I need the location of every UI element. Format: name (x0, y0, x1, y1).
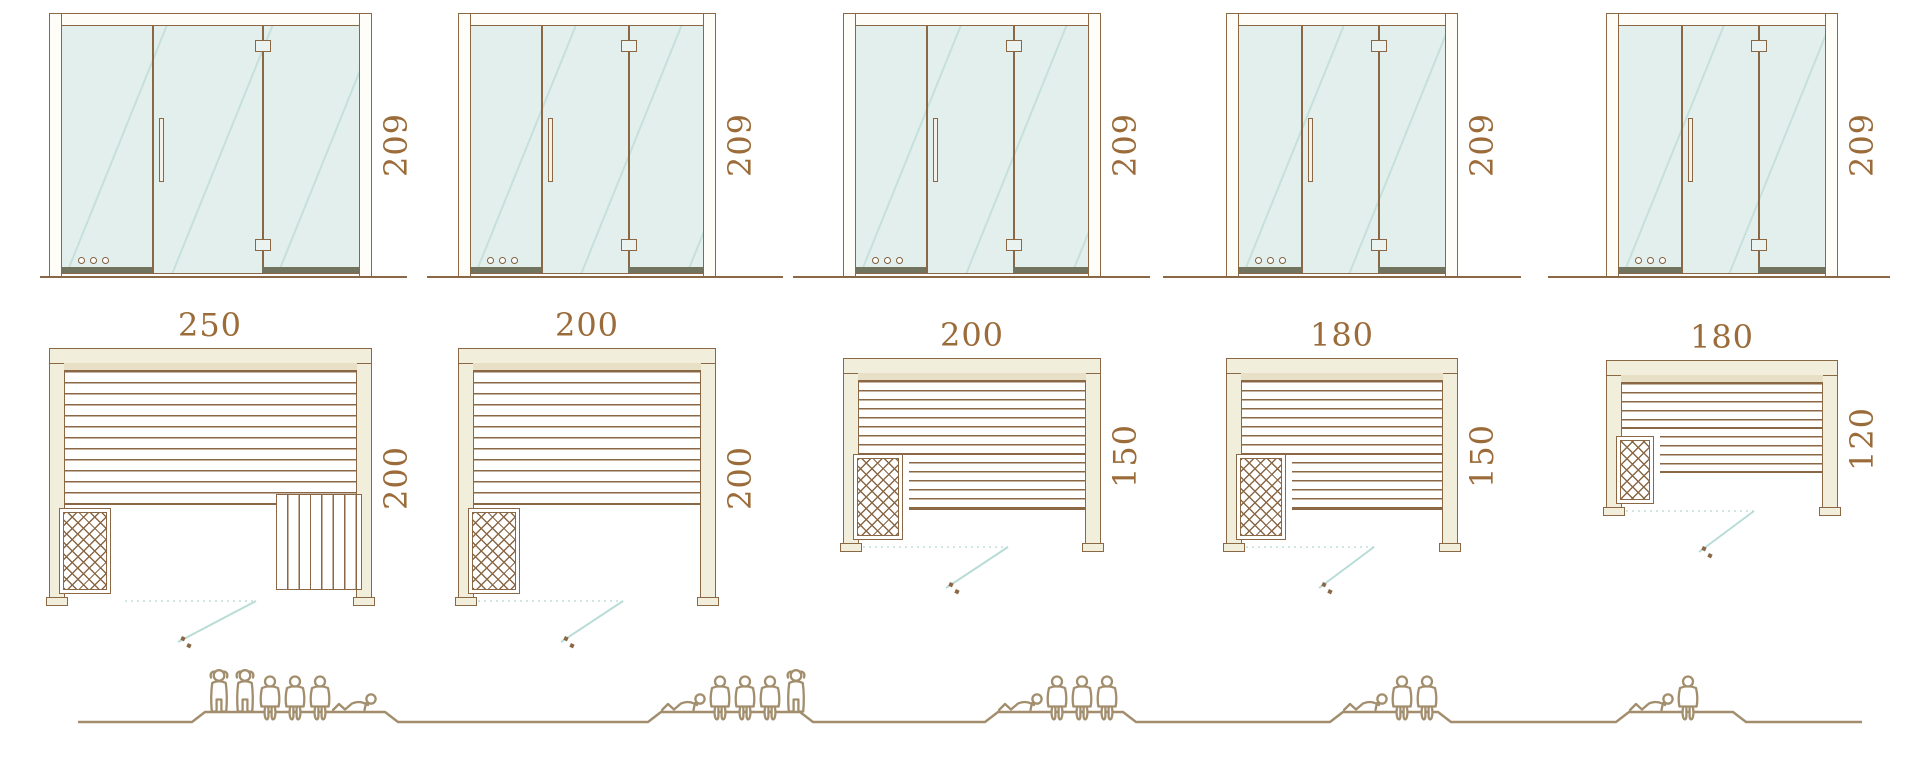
vent-hole (872, 257, 879, 264)
heater-lattice-icon (1616, 436, 1654, 504)
person-reclining-icon (1630, 694, 1673, 710)
plan-wall-ledge (1241, 373, 1443, 381)
swing-key-marker (1327, 589, 1332, 594)
plan-wall-ledge (1621, 375, 1823, 383)
door-hinge-mullion (262, 26, 264, 273)
person-seated-icon (1418, 677, 1437, 720)
vent-hole (102, 257, 109, 264)
person-seated-icon (286, 677, 305, 720)
bench-slats-upper (64, 371, 357, 505)
door-hinge-bottom-icon (621, 239, 637, 251)
lattice-mesh (472, 512, 516, 590)
door-left-mullion (926, 26, 928, 273)
lattice-mesh (1620, 440, 1650, 500)
vent-hole (1267, 257, 1274, 264)
person-seated-icon (736, 677, 755, 720)
person-seated-icon (1073, 677, 1092, 720)
capacity-group-5-people (662, 670, 804, 719)
bench-slats-lower (1660, 436, 1823, 473)
capacity-group-6-people (211, 670, 376, 719)
door-frame-right-post (1445, 13, 1458, 277)
door-ground-line (1163, 276, 1521, 278)
heater-lattice-icon (1236, 454, 1286, 540)
person-reclining-icon (333, 694, 376, 710)
lattice-mesh (857, 458, 899, 536)
glass-panels (470, 25, 704, 274)
glass-panels (61, 25, 360, 274)
person-seated-icon (761, 677, 780, 720)
person-seated-icon (1393, 677, 1412, 720)
person-seated-icon (311, 677, 330, 720)
plan-depth-dimension: 120 (1843, 407, 1881, 471)
person-reclining-icon (999, 694, 1042, 710)
door-hinge-top-icon (1371, 40, 1387, 52)
door-hinge-bottom-icon (1006, 239, 1022, 251)
door-elevation (1226, 13, 1458, 277)
door-hinge-top-icon (1006, 40, 1022, 52)
door-left-mullion (541, 26, 543, 273)
vent-hole (499, 257, 506, 264)
vent-holes-icon (1255, 257, 1286, 264)
door-hinge-mullion (1758, 26, 1760, 273)
vent-hole (487, 257, 494, 264)
floor-plan (49, 348, 372, 604)
door-swing-line (49, 598, 372, 662)
right-panel-bottom-rail (1758, 267, 1825, 273)
door-swing-line (1226, 544, 1458, 608)
person-reclining-icon (1344, 694, 1387, 710)
vent-hole (78, 257, 85, 264)
right-panel-bottom-rail (1378, 267, 1445, 273)
left-panel-bottom-rail (1239, 267, 1301, 273)
plan-top-wall (49, 348, 372, 364)
plan-right-wall (1085, 358, 1101, 550)
vent-hole (896, 257, 903, 264)
vent-holes-icon (1635, 257, 1666, 264)
plan-width-dimension: 250 (178, 306, 242, 344)
door-elevation (49, 13, 372, 277)
door-swing-line (1606, 508, 1838, 572)
bench-slats-upper (1241, 381, 1443, 455)
person-seated-icon (1048, 677, 1067, 720)
person-reclining-icon (662, 694, 705, 710)
glass-panels (1238, 25, 1446, 274)
vent-hole (1279, 257, 1286, 264)
door-elevation (843, 13, 1101, 277)
door-height-dimension: 209 (1463, 113, 1501, 177)
plan-top-wall (1606, 360, 1838, 376)
vent-holes-icon (78, 257, 109, 264)
plan-right-wall (700, 348, 716, 604)
floor-plan (843, 358, 1101, 550)
left-panel-bottom-rail (856, 267, 926, 273)
floor-plan (458, 348, 716, 604)
door-left-mullion (1301, 26, 1303, 273)
door-frame-right-post (359, 13, 372, 277)
lattice-mesh (63, 512, 107, 590)
door-frame-right-post (1088, 13, 1101, 277)
door-ground-line (40, 276, 407, 278)
door-left-mullion (152, 26, 154, 273)
door-hinge-top-icon (255, 40, 271, 52)
door-height-dimension: 209 (1843, 113, 1881, 177)
door-hinge-mullion (1378, 26, 1380, 273)
vent-hole (884, 257, 891, 264)
door-handle-icon (548, 118, 553, 182)
bench-slats-lower (909, 462, 1086, 510)
door-hinge-mullion (1013, 26, 1015, 273)
plan-width-dimension: 200 (940, 316, 1004, 354)
plan-top-wall (458, 348, 716, 364)
door-hinge-top-icon (1751, 40, 1767, 52)
plan-wall-ledge (64, 363, 357, 371)
door-elevation (458, 13, 716, 277)
vent-holes-icon (487, 257, 518, 264)
door-hinge-bottom-icon (1751, 239, 1767, 251)
door-ground-line (427, 276, 783, 278)
plan-right-wall (1822, 360, 1838, 514)
plan-width-dimension: 200 (555, 306, 619, 344)
plan-depth-dimension: 200 (377, 446, 415, 510)
vent-hole (511, 257, 518, 264)
left-panel-bottom-rail (62, 267, 152, 273)
vent-holes-icon (872, 257, 903, 264)
plan-depth-dimension: 200 (721, 446, 759, 510)
person-seated-icon (1098, 677, 1117, 720)
plan-right-wall (1442, 358, 1458, 550)
door-hinge-top-icon (621, 40, 637, 52)
glass-panels (855, 25, 1089, 274)
heater-lattice-icon (853, 454, 903, 540)
person-standing-icon (211, 670, 228, 711)
swing-key-marker (954, 589, 959, 594)
door-swing-line (458, 598, 716, 662)
floor-plan (1226, 358, 1458, 550)
lattice-mesh (1240, 458, 1282, 536)
bench-slats-upper (473, 371, 701, 505)
person-seated-icon (261, 677, 280, 720)
plan-top-wall (1226, 358, 1458, 374)
door-handle-icon (933, 118, 938, 182)
door-handle-icon (1308, 118, 1313, 182)
person-standing-icon (788, 670, 805, 711)
door-frame-right-post (703, 13, 716, 277)
right-panel-bottom-rail (628, 267, 703, 273)
door-hinge-bottom-icon (255, 239, 271, 251)
glass-panels (1618, 25, 1826, 274)
door-frame-right-post (1825, 13, 1838, 277)
door-hinge-mullion (628, 26, 630, 273)
right-panel-bottom-rail (262, 267, 359, 273)
vent-hole (1255, 257, 1262, 264)
capacity-group-2-people (1630, 677, 1697, 720)
bench-slats-upper (1621, 383, 1823, 429)
door-handle-icon (1688, 118, 1693, 182)
bench-slats-lower (1292, 462, 1443, 510)
vent-hole (1659, 257, 1666, 264)
right-panel-bottom-rail (1013, 267, 1088, 273)
heater-lattice-icon (59, 508, 111, 594)
person-seated-icon (1679, 677, 1698, 720)
person-seated-icon (711, 677, 730, 720)
ground-line (78, 712, 1862, 722)
plan-width-dimension: 180 (1690, 318, 1754, 356)
left-panel-bottom-rail (1619, 267, 1681, 273)
capacity-group-4-people (999, 677, 1116, 720)
door-height-dimension: 209 (1106, 113, 1144, 177)
swing-key-marker (186, 643, 191, 648)
door-ground-line (793, 276, 1150, 278)
door-ground-line (1548, 276, 1890, 278)
floor-plan (1606, 360, 1838, 514)
left-panel-bottom-rail (471, 267, 541, 273)
door-handle-icon (159, 118, 164, 182)
plan-width-dimension: 180 (1310, 316, 1374, 354)
vent-hole (1635, 257, 1642, 264)
door-swing-line (843, 544, 1101, 608)
plan-depth-dimension: 150 (1106, 424, 1144, 488)
step-bench (276, 494, 362, 590)
door-elevation (1606, 13, 1838, 277)
door-left-mullion (1681, 26, 1683, 273)
bench-slats-upper (858, 381, 1086, 455)
door-hinge-bottom-icon (1371, 239, 1387, 251)
vent-hole (90, 257, 97, 264)
person-standing-icon (237, 670, 254, 711)
heater-lattice-icon (468, 508, 520, 594)
door-height-dimension: 209 (377, 113, 415, 177)
plan-wall-ledge (473, 363, 701, 371)
vent-hole (1647, 257, 1654, 264)
door-height-dimension: 209 (721, 113, 759, 177)
capacity-group-3-people (1344, 677, 1436, 720)
plan-wall-ledge (858, 373, 1086, 381)
swing-key-marker (1707, 553, 1712, 558)
sauna-size-diagram: 2092502002092002002092001502091801502091… (0, 0, 1920, 764)
swing-key-marker (569, 643, 574, 648)
plan-depth-dimension: 150 (1463, 424, 1501, 488)
plan-top-wall (843, 358, 1101, 374)
